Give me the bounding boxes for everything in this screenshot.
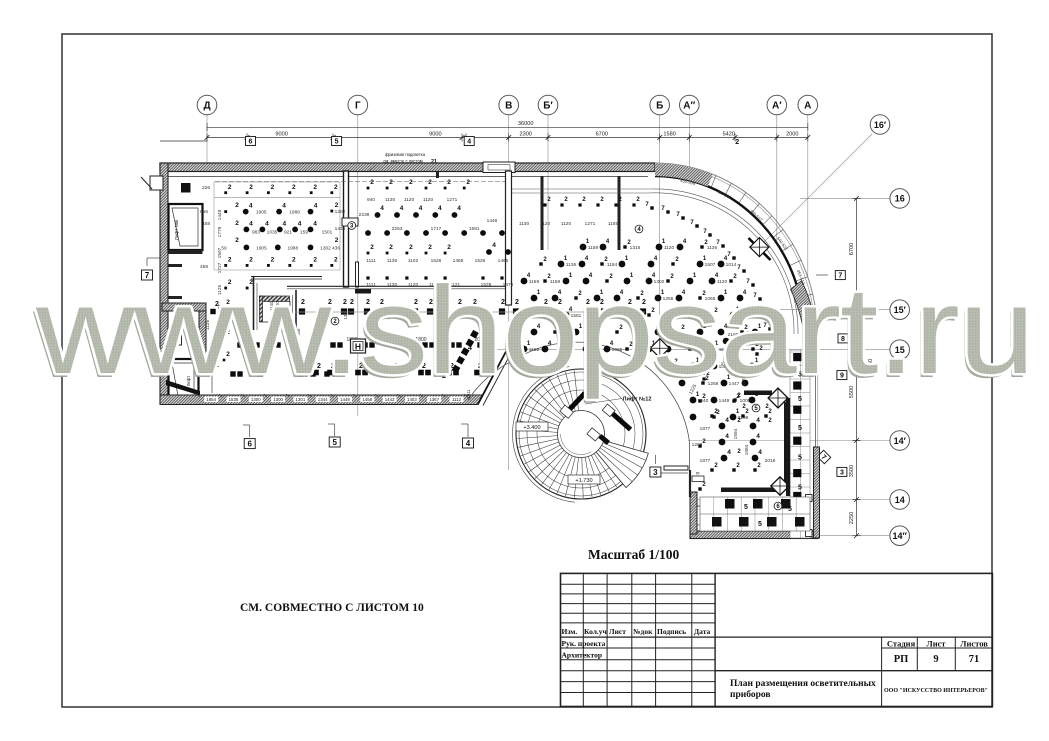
svg-text:1436: 1436 [335,226,346,232]
svg-text:1316: 1316 [630,245,641,251]
svg-text:1594: 1594 [733,428,739,439]
svg-text:Дата: Дата [694,627,710,636]
svg-text:16′: 16′ [874,120,886,130]
svg-text:Подпись: Подпись [657,627,686,636]
svg-text:2: 2 [235,237,239,244]
svg-text:4: 4 [438,205,442,212]
svg-text:226: 226 [202,185,210,191]
svg-text:Рук. проекта: Рук. проекта [562,639,606,648]
svg-text:1136: 1136 [707,245,718,251]
svg-text:1507: 1507 [217,247,223,258]
svg-text:4: 4 [380,205,384,212]
svg-text:1208: 1208 [692,442,703,448]
svg-text:5: 5 [798,425,802,432]
svg-text:2: 2 [313,184,317,191]
svg-text:458: 458 [202,221,210,227]
svg-text:4: 4 [265,220,269,227]
svg-text:1779: 1779 [217,226,223,237]
svg-text:5: 5 [744,504,748,511]
svg-text:4: 4 [400,205,404,212]
svg-text:4: 4 [466,439,471,448]
svg-text:2250: 2250 [849,512,855,524]
svg-text:2238: 2238 [359,212,370,218]
svg-text:6: 6 [247,440,252,449]
svg-text:4: 4 [313,220,317,227]
svg-text:6: 6 [249,139,253,146]
svg-text:5: 5 [758,521,762,528]
svg-text:14: 14 [895,495,905,505]
svg-text:2: 2 [335,237,339,244]
svg-text:А: А [804,101,811,112]
svg-text:Б′: Б′ [543,101,553,112]
svg-text:2: 2 [447,244,451,251]
svg-text:4: 4 [756,433,760,440]
svg-text:4: 4 [282,203,286,210]
svg-text:4: 4 [249,203,253,210]
svg-text:2018: 2018 [765,458,776,464]
svg-text:2: 2 [735,139,739,146]
svg-text:1905: 1905 [256,210,267,216]
svg-text:+1.730: +1.730 [575,478,592,484]
svg-text:2: 2 [409,244,413,251]
svg-text:2: 2 [447,179,451,186]
svg-text:5: 5 [798,455,802,462]
svg-text:№док: №док [633,627,653,636]
svg-text:2: 2 [428,179,432,186]
svg-text:1905: 1905 [256,245,267,251]
svg-text:1446: 1446 [487,218,498,224]
svg-text:3: 3 [840,469,844,476]
svg-text:9000: 9000 [275,131,287,137]
svg-text:1302: 1302 [335,209,346,215]
svg-text:4: 4 [298,220,302,227]
svg-text:4: 4 [725,417,729,424]
svg-text:5: 5 [332,438,337,447]
svg-text:4: 4 [419,205,423,212]
svg-text:Архитектор: Архитектор [562,651,603,660]
svg-text:5: 5 [335,139,339,146]
svg-text:2: 2 [335,202,339,209]
svg-text:1584: 1584 [744,444,750,455]
svg-text:2: 2 [428,244,432,251]
svg-text:5420: 5420 [723,131,735,137]
svg-text:1302: 1302 [320,245,331,251]
svg-text:пг: пг [696,471,700,476]
svg-text:2: 2 [389,244,393,251]
svg-text:5: 5 [788,506,792,513]
svg-text:5: 5 [716,521,720,528]
svg-text:36000: 36000 [518,121,534,127]
svg-text:1717: 1717 [431,226,442,232]
svg-text:2: 2 [292,184,296,191]
svg-text:4: 4 [492,242,496,249]
svg-text:159: 159 [300,229,308,235]
svg-text:1159: 1159 [608,221,619,227]
svg-text:1120: 1120 [423,197,434,203]
svg-text:5: 5 [798,485,802,492]
svg-text:Лифт №6: Лифт №6 [174,219,179,240]
svg-text:16: 16 [895,194,905,204]
svg-text:План размещения осветительных: План размещения осветительных [730,679,876,689]
svg-text:9: 9 [933,654,938,665]
svg-text:2: 2 [409,179,413,186]
svg-text:3500: 3500 [849,465,855,477]
svg-text:436: 436 [332,245,340,251]
svg-text:приборов: приборов [730,689,771,700]
svg-text:1580: 1580 [663,132,675,138]
svg-text:2: 2 [334,184,338,191]
svg-text:21: 21 [431,159,437,165]
svg-text:Б: Б [656,101,663,112]
svg-text:www.shopsart.ru: www.shopsart.ru [35,262,1034,400]
svg-text:ООО "ИСКУССТВО ИНТЕРЬЕРОВ": ООО "ИСКУССТВО ИНТЕРЬЕРОВ" [884,688,988,694]
svg-text:РП: РП [894,654,909,665]
svg-text:4: 4 [314,203,318,210]
svg-text:фризовая подсветка: фризовая подсветка [385,152,426,157]
svg-text:Изм.: Изм. [562,627,578,636]
svg-text:4: 4 [249,220,253,227]
svg-text:4: 4 [725,433,729,440]
svg-text:Листов: Листов [960,639,988,649]
svg-text:2: 2 [271,184,275,191]
svg-text:1120: 1120 [540,221,551,227]
svg-text:4: 4 [758,449,762,456]
svg-text:656: 656 [200,209,208,215]
svg-text:Д: Д [203,101,210,112]
svg-text:1271: 1271 [447,197,458,203]
svg-text:1130: 1130 [385,197,396,203]
svg-text:9000: 9000 [429,131,441,137]
svg-text:2000: 2000 [786,132,798,138]
svg-text:1120: 1120 [664,245,675,251]
svg-text:2300: 2300 [519,132,531,138]
svg-text:Стадия: Стадия [887,639,916,649]
svg-text:Кол.уч: Кол.уч [584,627,608,636]
svg-text:2: 2 [249,184,253,191]
svg-text:Лист: Лист [609,627,626,636]
svg-text:1501: 1501 [322,229,333,235]
svg-text:2: 2 [235,202,239,209]
svg-text:Лист: Лист [926,639,946,649]
svg-text:4: 4 [457,205,461,212]
svg-text:СМ. СОВМЕСТНО С ЛИСТОМ 10: СМ. СОВМЕСТНО С ЛИСТОМ 10 [240,602,424,614]
svg-text:1120: 1120 [404,197,415,203]
svg-text:4: 4 [282,220,286,227]
svg-text:1159: 1159 [588,245,599,251]
svg-text:4: 4 [756,417,760,424]
svg-text:1877: 1877 [700,458,711,464]
svg-text:+3.400: +3.400 [523,425,540,431]
svg-text:983: 983 [252,229,260,235]
svg-text:2: 2 [228,184,232,191]
svg-text:см. вместе с листом: см. вместе с листом [383,159,422,164]
svg-text:2: 2 [466,179,470,186]
svg-text:1988: 1988 [287,245,298,251]
svg-text:1120: 1120 [561,221,572,227]
svg-text:14″: 14″ [893,531,908,541]
svg-text:6700: 6700 [849,243,855,255]
svg-text:1130: 1130 [519,221,530,227]
svg-text:71: 71 [969,654,980,665]
svg-text:1271: 1271 [585,221,596,227]
svg-text:А′′: А′′ [683,101,696,112]
svg-text:А′: А′ [772,101,782,112]
svg-text:2: 2 [389,179,393,186]
svg-text:3: 3 [653,468,658,477]
svg-text:6700: 6700 [596,132,608,138]
svg-text:4: 4 [467,139,471,146]
svg-text:2: 2 [235,220,239,227]
svg-text:1877: 1877 [700,426,711,432]
svg-text:В: В [505,101,512,112]
svg-text:1581: 1581 [469,226,480,232]
svg-text:1035: 1035 [267,229,278,235]
svg-text:2253: 2253 [392,226,403,232]
svg-text:940: 940 [367,197,375,203]
svg-text:Масштаб 1/100: Масштаб 1/100 [588,547,680,562]
svg-text:1988: 1988 [289,210,300,216]
svg-text:4: 4 [727,449,731,456]
svg-text:Г: Г [355,101,361,112]
svg-text:1449: 1449 [217,209,223,220]
svg-text:921: 921 [284,229,292,235]
svg-text:2: 2 [370,244,374,251]
svg-text:2: 2 [370,179,374,186]
svg-text:14′: 14′ [894,436,906,446]
